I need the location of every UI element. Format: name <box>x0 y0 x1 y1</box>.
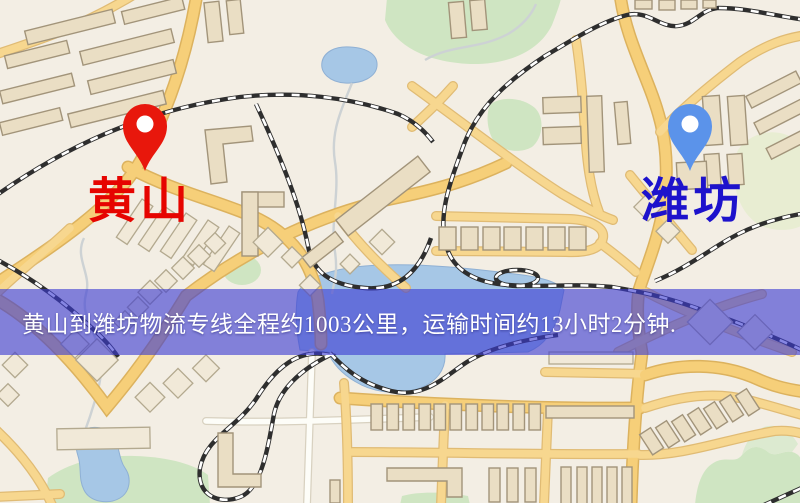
route-info-text: 黄山到潍坊物流专线全程约1003公里，运输时间约13小时2分钟. <box>22 305 676 339</box>
destination-pin-hole <box>682 116 699 133</box>
map-screenshot: 黄山到潍坊物流专线全程约1003公里，运输时间约13小时2分钟. 黄山 潍坊 <box>0 0 800 503</box>
lake <box>322 47 377 83</box>
route-info-banner: 黄山到潍坊物流专线全程约1003公里，运输时间约13小时2分钟. <box>0 289 800 355</box>
origin-label: 黄山 <box>88 178 192 226</box>
map-canvas <box>0 0 800 503</box>
destination-label: 潍坊 <box>641 178 745 226</box>
buildings-layer <box>0 0 800 503</box>
origin-pin-hole <box>137 116 154 133</box>
